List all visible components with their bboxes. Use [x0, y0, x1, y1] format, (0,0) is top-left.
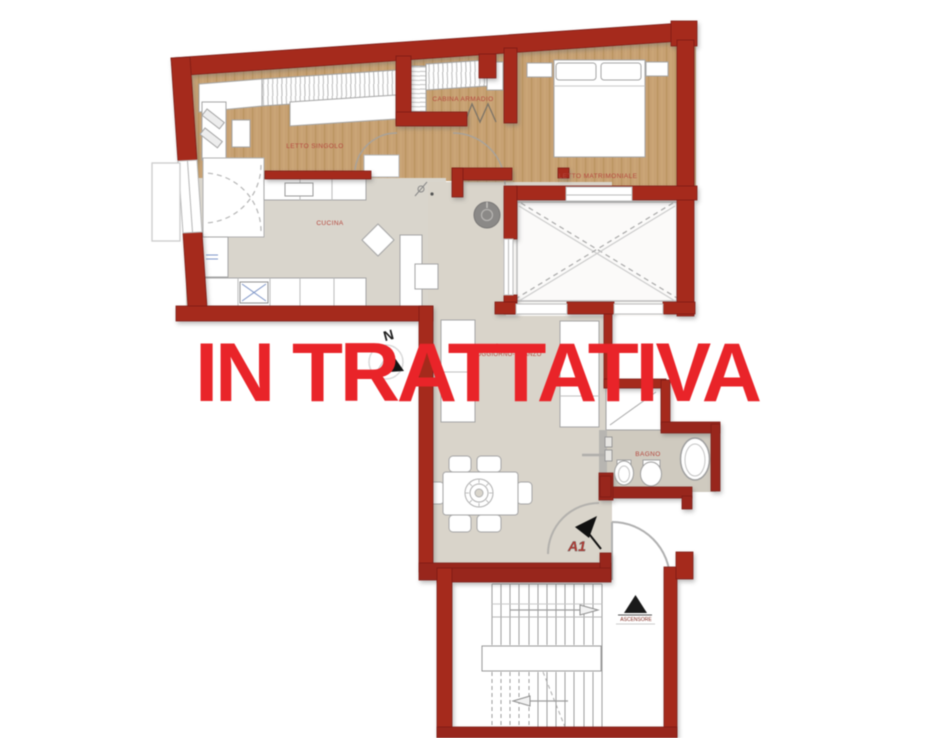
svg-text:CABINA ARMADIO: CABINA ARMADIO: [432, 96, 493, 103]
svg-text:ASCENSORE: ASCENSORE: [620, 617, 652, 623]
svg-text:A1: A1: [567, 538, 586, 554]
svg-text:CUCINA: CUCINA: [316, 220, 344, 227]
svg-text:LETTO SINGOLO: LETTO SINGOLO: [286, 143, 343, 150]
svg-text:LETTO MATRIMONIALE: LETTO MATRIMONIALE: [559, 173, 638, 180]
svg-text:BAGNO: BAGNO: [635, 451, 660, 458]
